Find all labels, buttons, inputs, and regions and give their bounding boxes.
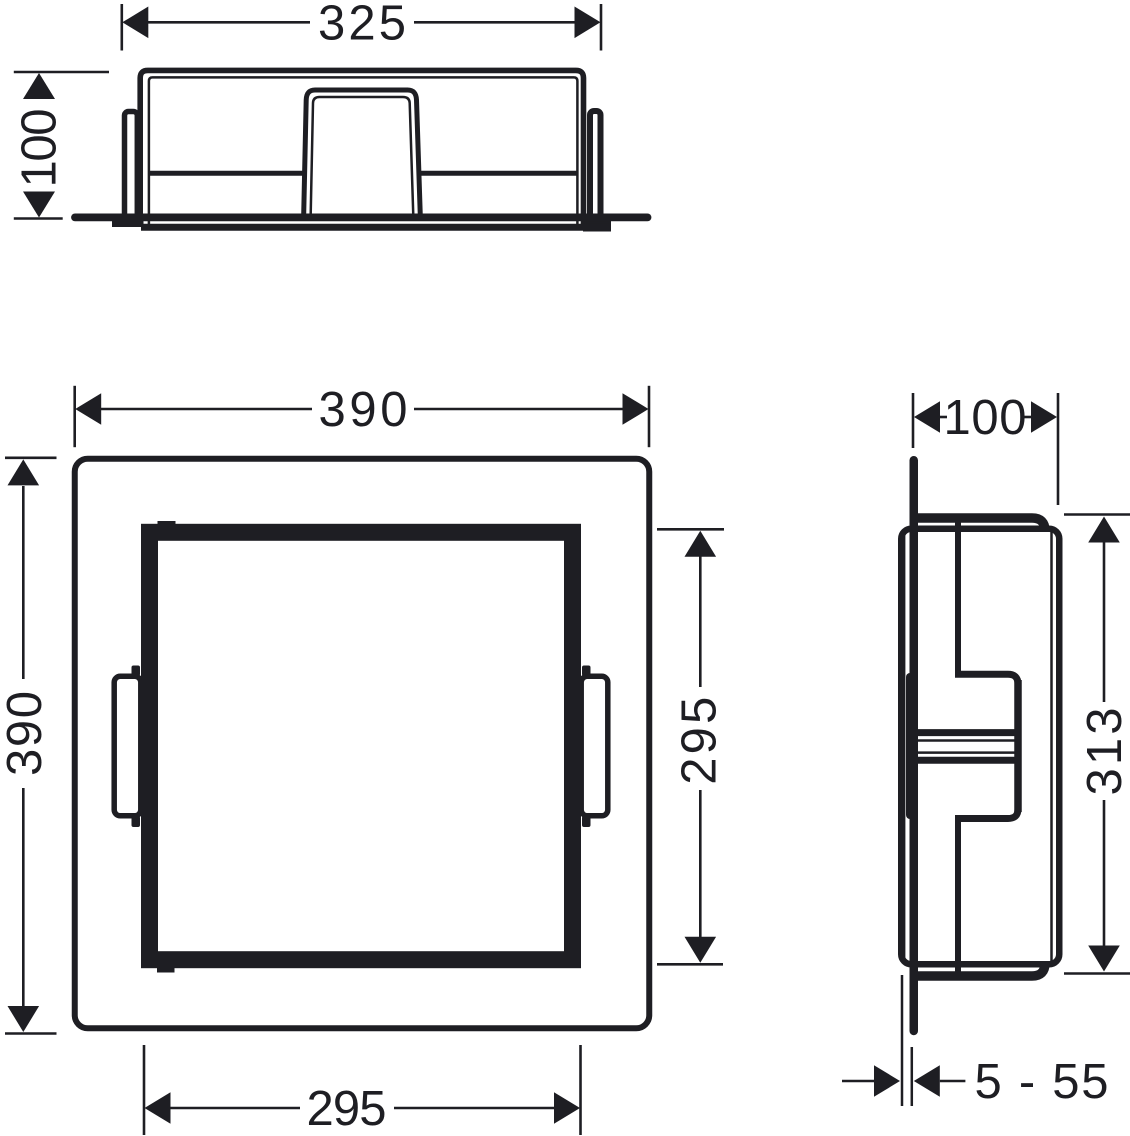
svg-text:390: 390 xyxy=(0,691,52,776)
svg-text:313: 313 xyxy=(1078,708,1130,796)
svg-text:100: 100 xyxy=(944,391,1027,445)
svg-text:390: 390 xyxy=(319,383,408,437)
svg-text:5 - 55: 5 - 55 xyxy=(975,1055,1109,1109)
svg-text:295: 295 xyxy=(307,1082,387,1136)
svg-text:100: 100 xyxy=(13,109,67,188)
svg-text:325: 325 xyxy=(318,0,406,50)
svg-text:295: 295 xyxy=(673,697,727,785)
